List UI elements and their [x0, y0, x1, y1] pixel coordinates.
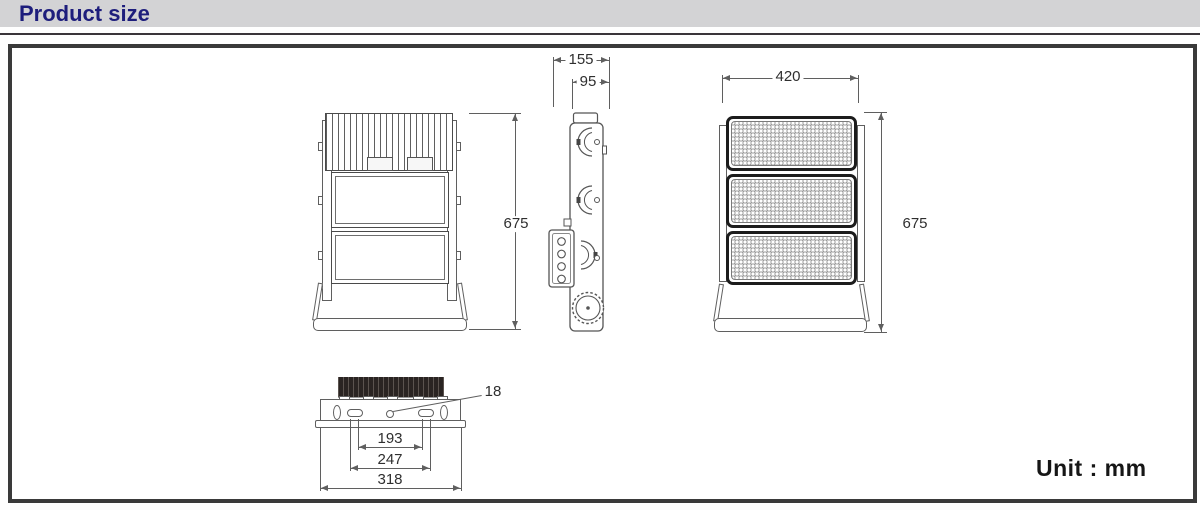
dim-675-front-label: 675	[902, 216, 927, 232]
unit-note: Unit : mm	[1036, 455, 1147, 482]
ext-line	[422, 419, 423, 450]
dim-line-318	[320, 488, 461, 489]
front-right-rail	[857, 125, 865, 282]
dim-193-label: 193	[377, 431, 402, 447]
dim-95-label: 95	[577, 74, 600, 90]
gear-center-dot	[586, 306, 590, 310]
ext-line	[858, 75, 859, 103]
dim-arrow	[414, 444, 421, 450]
mount-pill-left	[347, 409, 363, 417]
dim-318-label: 318	[377, 472, 402, 488]
dim-line-193	[358, 447, 422, 448]
screw-dot	[595, 256, 600, 261]
dim-arrow	[878, 324, 884, 331]
ext-line	[553, 57, 554, 107]
bottom-heatsink-block	[338, 377, 444, 398]
side-top-cap	[574, 113, 598, 123]
dim-arrow	[878, 113, 884, 120]
screw-dot	[595, 140, 600, 145]
led-array-1	[731, 121, 852, 166]
heatsink-notch	[367, 157, 393, 171]
ext-line	[320, 428, 321, 491]
screw-dot	[595, 198, 600, 203]
dim-arrow	[601, 57, 608, 63]
dim-arrow	[422, 465, 429, 471]
dim-18-label: 18	[485, 384, 502, 400]
dim-arrow	[723, 75, 730, 81]
dim-line-675-front	[881, 112, 882, 332]
dim-155-label: 155	[565, 52, 596, 68]
ext-line	[469, 329, 521, 330]
dim-arrow	[351, 465, 358, 471]
rail-bump	[318, 196, 323, 205]
dim-arrow	[453, 485, 460, 491]
rail-bump	[318, 251, 323, 260]
header-bar	[0, 0, 1200, 27]
led-module-1	[726, 116, 857, 171]
gland-hole	[558, 250, 566, 258]
bracket-tab	[363, 396, 374, 400]
bracket-tab	[437, 396, 448, 400]
ext-line	[350, 419, 351, 471]
side-left-tab	[564, 219, 571, 226]
bottom-bracket-lip	[315, 420, 466, 428]
dim-420-label: 420	[772, 69, 803, 85]
ext-line	[864, 332, 887, 333]
dim-arrow	[321, 485, 328, 491]
led-module-2	[726, 174, 857, 228]
bracket-tab	[339, 396, 350, 400]
led-module-3	[726, 231, 857, 285]
rear-module-3	[331, 231, 449, 284]
rail-bump	[456, 142, 461, 151]
rear-bracket-bar	[313, 318, 467, 331]
dim-arrow	[850, 75, 857, 81]
dim-675-rear-label: 675	[500, 216, 531, 232]
hinge-nub	[577, 197, 581, 203]
rear-heatsink-module	[325, 113, 453, 171]
mount-pill-right	[418, 409, 434, 417]
dim-247-label: 247	[377, 452, 402, 468]
led-array-3	[731, 236, 852, 280]
ext-line	[430, 419, 431, 471]
mount-slot-left	[333, 405, 341, 420]
title-underline	[0, 33, 1200, 35]
side-view-drawing	[540, 100, 620, 340]
rear-module-3-inner	[335, 235, 445, 280]
side-right-tab	[603, 146, 607, 154]
gland-hole	[558, 238, 566, 246]
ext-line	[609, 57, 610, 109]
dim-arrow	[601, 79, 608, 85]
front-bracket-bar	[714, 318, 867, 332]
dim-line-247	[350, 468, 430, 469]
rail-bump	[456, 196, 461, 205]
dim-arrow	[512, 114, 518, 121]
led-array-2	[731, 179, 852, 223]
bracket-tab	[413, 396, 424, 400]
rear-module-2-inner	[335, 176, 445, 224]
gland-hole	[558, 275, 566, 283]
page-title: Product size	[19, 0, 150, 27]
rail-bump	[318, 142, 323, 151]
mount-slot-right	[440, 405, 448, 420]
heatsink-notch	[407, 157, 433, 171]
hinge-nub	[577, 139, 581, 145]
bracket-tab	[387, 396, 398, 400]
dim-arrow	[512, 321, 518, 328]
gland-hole	[558, 263, 566, 271]
dim-arrow	[359, 444, 366, 450]
dim-arrow	[554, 57, 561, 63]
ext-line	[461, 428, 462, 491]
rail-bump	[456, 251, 461, 260]
rear-module-2	[331, 172, 449, 228]
